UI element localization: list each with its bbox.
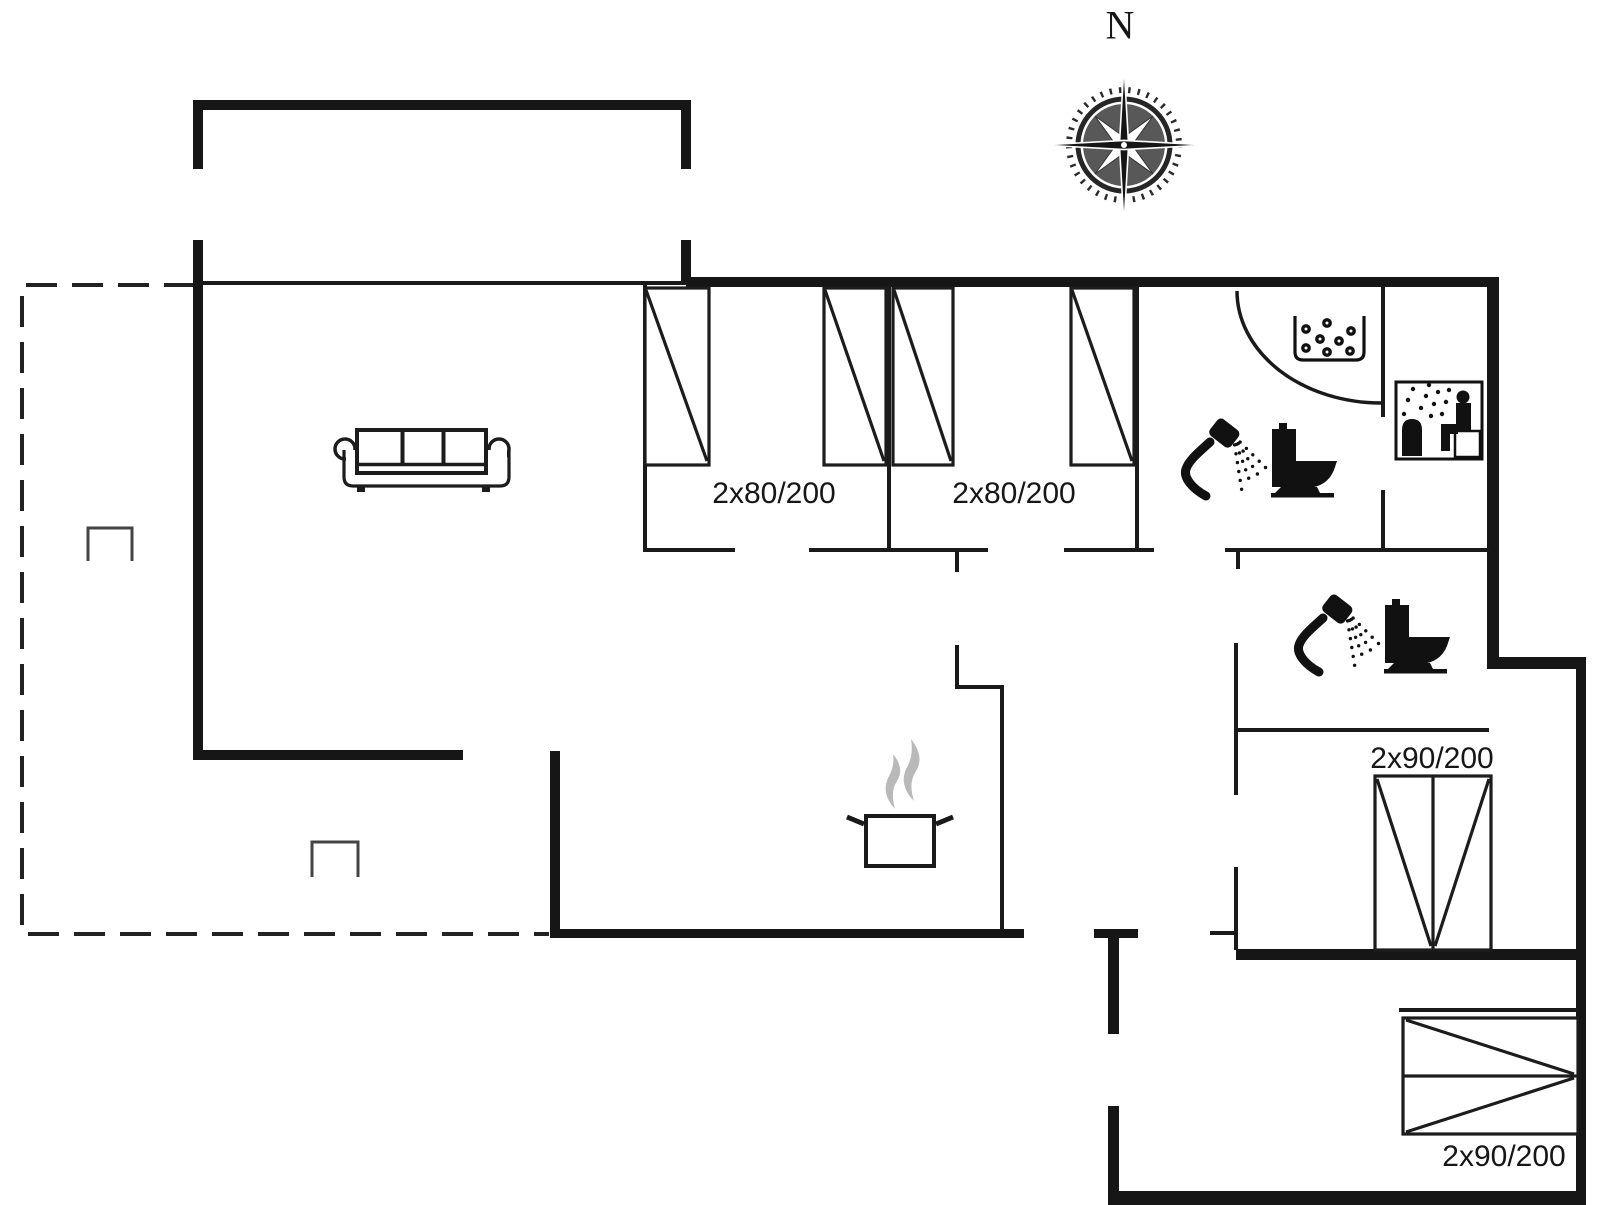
svg-text:2x90/200: 2x90/200 [1370, 742, 1493, 775]
svg-text:N: N [1106, 3, 1135, 48]
svg-text:2x90/200: 2x90/200 [1442, 1140, 1565, 1173]
svg-text:2x80/200: 2x80/200 [952, 477, 1075, 510]
svg-text:2x80/200: 2x80/200 [712, 477, 835, 510]
